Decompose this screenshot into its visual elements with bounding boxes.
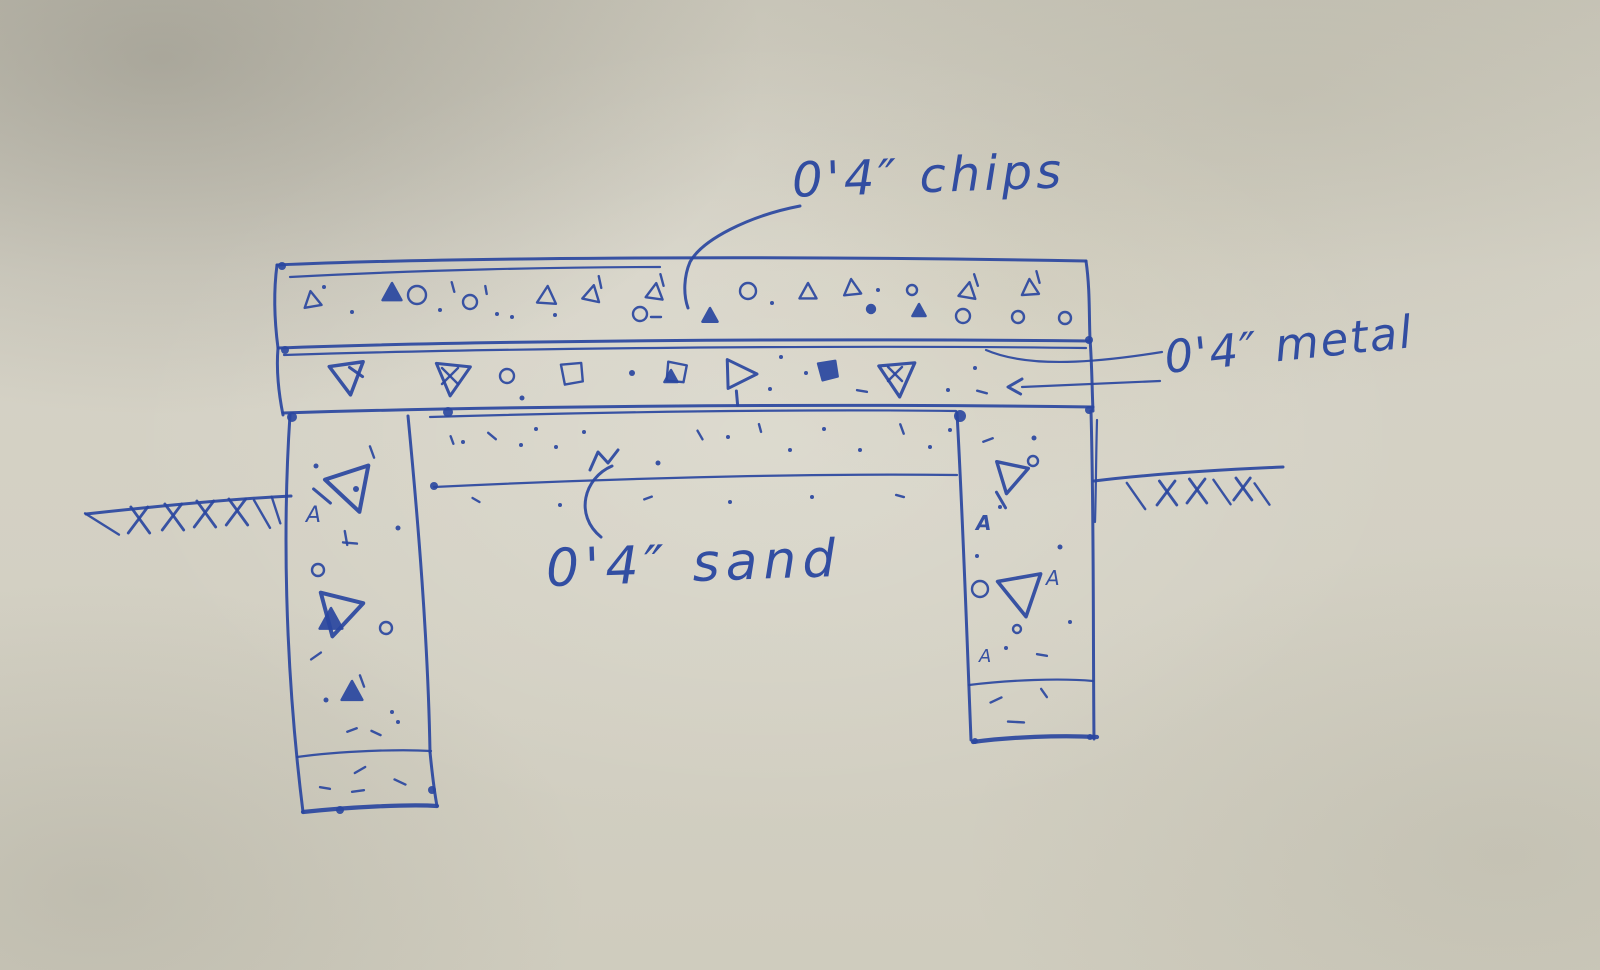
sand-ln-mark — [759, 424, 761, 432]
sand-ln-mark — [488, 433, 496, 439]
sand-d-mark — [558, 503, 562, 507]
right_column-A-mark: A — [1044, 566, 1060, 590]
right_column-d-mark — [1068, 620, 1072, 624]
sand-d-mark — [519, 443, 523, 447]
sand-layer-marks — [451, 424, 952, 507]
sand-label: 0'4″ sand — [545, 529, 842, 599]
ground_left-hx-mark — [165, 504, 184, 530]
left_column-tf-mark — [320, 608, 343, 629]
right_column-ln-mark — [1037, 654, 1047, 656]
metal-d-mark — [629, 370, 635, 376]
right_column-ln-mark — [983, 438, 992, 441]
chips-band-top-double — [290, 267, 660, 277]
ground-hatching-right — [1127, 478, 1270, 509]
ink-blob — [428, 786, 436, 794]
sand-ln-mark — [644, 497, 652, 500]
chips-tu-mark — [958, 281, 978, 299]
right-column-footing-bottom — [973, 736, 1097, 742]
metal-d-mark — [946, 388, 950, 392]
chips-c-mark — [463, 295, 477, 309]
right_column-A-mark: A — [974, 511, 991, 535]
chips-c-mark — [1059, 312, 1071, 324]
sand-ln-mark — [896, 495, 904, 497]
ink-blob — [954, 410, 966, 422]
ground_left-hx-mark — [162, 504, 182, 530]
chips-ln-mark — [974, 274, 978, 285]
sand-d-mark — [810, 495, 814, 499]
chips-c-mark — [867, 305, 875, 313]
ground_left-hx-mark — [131, 507, 150, 533]
ground_left-ln-mark — [272, 497, 281, 524]
left_column-d-mark — [396, 720, 400, 724]
right_column-td-mark — [998, 574, 1048, 621]
sand-d-mark — [822, 427, 826, 431]
ground_right-hx-mark — [1187, 479, 1205, 503]
metal-d-mark — [779, 355, 783, 359]
left_column-tf-mark — [342, 681, 363, 700]
chips-d-mark — [770, 301, 774, 305]
metal-d-mark — [804, 371, 808, 375]
metal-d-mark — [973, 366, 977, 370]
chips-tu-mark — [646, 282, 665, 300]
ink-blob — [1085, 406, 1093, 414]
right_column-ln-mark — [991, 697, 1002, 702]
metal-d-mark — [768, 387, 772, 391]
sand-ln-mark — [473, 498, 480, 502]
chips-c-mark — [740, 283, 756, 299]
right_column-d-mark — [1058, 545, 1063, 550]
chips-tu-mark — [582, 283, 602, 302]
sand-arrowhead — [590, 450, 618, 470]
right-column-right-edge — [1091, 411, 1094, 739]
ink-blob — [430, 482, 438, 490]
metal-ah-mark — [1008, 379, 1022, 394]
chips-ln-mark — [485, 286, 486, 294]
metal-layer-marks — [329, 355, 1022, 405]
metal-leader-upper — [986, 350, 1162, 362]
ground_right-ln-mark — [1213, 480, 1230, 505]
left_column-A-mark: A — [304, 503, 321, 528]
chips-d-mark — [495, 312, 499, 316]
sand-d-mark — [656, 461, 661, 466]
ground_left-hx-mark — [194, 501, 214, 527]
chips-tu-mark — [799, 283, 816, 298]
ground_left-hx-mark — [229, 499, 248, 525]
chips-d-mark — [553, 313, 557, 317]
right_column-ln-mark — [1041, 689, 1047, 697]
chips-label: 0'4″ chips — [791, 143, 1066, 208]
chips-band-top — [277, 258, 1086, 265]
ground_left-hx-mark — [226, 499, 246, 525]
metal-td-mark — [879, 363, 918, 399]
metal-ln-mark — [857, 390, 867, 392]
chips-tu-mark — [302, 290, 322, 308]
left_column-ln-mark — [360, 675, 364, 686]
metal-q-mark — [561, 362, 584, 385]
right_column-c-mark — [1013, 625, 1021, 633]
chips-d-mark — [876, 288, 880, 292]
metal-band-right — [1090, 339, 1093, 411]
sand-d-mark — [948, 428, 952, 432]
metal-c-mark — [500, 369, 514, 383]
left_column-ln-mark — [314, 489, 331, 503]
chips-ln-mark — [452, 282, 455, 292]
chips-tu-mark — [1021, 278, 1039, 295]
ground_left-hx-mark — [197, 501, 216, 527]
left_column-c-mark — [312, 564, 324, 576]
left-column-right-edge-lower — [430, 752, 437, 806]
left-column-marks: A — [304, 446, 405, 791]
sand-d-mark — [788, 448, 792, 452]
right_column-d-mark — [1032, 436, 1037, 441]
ground_right-hx-mark — [1159, 481, 1176, 505]
left_column-d-mark — [390, 710, 394, 714]
left_column-ln-mark — [347, 728, 356, 731]
left_column-d-mark — [353, 486, 359, 492]
ground_left-hx-mark — [128, 507, 148, 533]
ground_right-hx-mark — [1189, 479, 1206, 503]
ink-blob — [443, 407, 453, 417]
left_column-c-mark — [380, 622, 392, 634]
left_column-ln-mark — [395, 779, 406, 784]
metal-qf-mark — [818, 360, 839, 381]
chips-ln-mark — [599, 276, 601, 288]
band-divider-double — [284, 347, 1086, 355]
left_column-ln-mark — [355, 767, 365, 773]
metal-ln-mark — [977, 391, 987, 394]
ink-blob — [1087, 734, 1093, 740]
ink-blob — [972, 738, 978, 744]
chips-d-mark — [510, 315, 514, 319]
right_column-c-mark — [1028, 456, 1038, 466]
left_column-ln-mark — [311, 653, 321, 660]
chips-tu-mark — [537, 285, 557, 303]
right_column-A-mark: A — [978, 646, 991, 667]
left-column-footing-bottom — [303, 805, 437, 812]
sand-strip-line — [434, 475, 957, 487]
chips-tf-mark — [912, 304, 925, 316]
ink-blob — [281, 346, 289, 354]
sand-ln-mark — [451, 436, 454, 444]
left-column-right-edge — [408, 416, 430, 752]
ground_right-hx-mark — [1157, 481, 1175, 505]
sketch-drawing: A AAA — [0, 0, 1600, 970]
metal-td-mark — [433, 363, 470, 397]
left_column-ln-mark — [370, 446, 374, 457]
chips-c-mark — [633, 307, 647, 321]
left_column-d-mark — [314, 464, 319, 469]
chips-ln-mark — [1036, 271, 1039, 283]
sand-ln-mark — [900, 424, 903, 433]
right-column-right-edge-double — [1095, 420, 1097, 522]
chips-c-mark — [408, 286, 426, 304]
left-column-left-edge — [286, 415, 303, 812]
left-column-footing-divider — [297, 750, 431, 757]
left_column-ln-mark — [371, 731, 380, 735]
sand-d-mark — [582, 430, 586, 434]
right_column-c-mark — [972, 581, 988, 597]
sand-d-mark — [534, 427, 538, 431]
ground_right-ln-mark — [1127, 483, 1145, 509]
chips-ln-mark — [660, 274, 663, 286]
sand-d-mark — [858, 448, 862, 452]
right_column-d-mark — [1004, 646, 1008, 650]
ground_right-ln-mark — [1255, 483, 1270, 504]
ink-blob — [1085, 336, 1093, 344]
right_column-d-mark — [998, 505, 1002, 509]
metal-band-bottom-double — [430, 410, 956, 417]
ground_right-hx-mark — [1234, 478, 1251, 500]
ground_left-ln-mark — [254, 500, 270, 528]
chips-d-mark — [438, 308, 442, 312]
chips-c-mark — [956, 309, 970, 323]
sand-d-mark — [554, 445, 558, 449]
ink-blob — [287, 412, 297, 422]
chips-d-mark — [350, 310, 354, 314]
metal-ln-mark — [736, 391, 737, 405]
chips-d-mark — [322, 285, 326, 289]
right-column-footing-divider — [969, 680, 1093, 685]
metal-band-left — [277, 348, 283, 415]
left_column-td-mark — [325, 466, 381, 519]
sand-ln-mark — [698, 431, 703, 440]
chips-band-left — [275, 265, 278, 348]
chips-c-mark — [907, 285, 917, 295]
metal-d-mark — [520, 396, 525, 401]
sand-d-mark — [461, 440, 465, 444]
chips-c-mark — [1012, 311, 1024, 323]
sand-d-mark — [928, 445, 932, 449]
ink-blob — [278, 262, 286, 270]
left_column-d-mark — [324, 698, 329, 703]
left_column-d-mark — [396, 526, 401, 531]
ground_left-ln-mark — [85, 513, 119, 534]
metal-tr-mark — [727, 360, 757, 389]
left_column-ln-mark — [320, 787, 330, 789]
chips-tf-mark — [702, 308, 717, 322]
left_column-ln-mark — [352, 790, 364, 792]
ground-hatching-left — [85, 497, 280, 535]
ink-blob — [336, 806, 344, 814]
right_column-ln-mark — [1008, 722, 1024, 723]
sand-d-mark — [726, 435, 730, 439]
chips-band-right — [1086, 261, 1090, 339]
left_column-ln-mark — [343, 542, 357, 543]
sand-d-mark — [728, 500, 732, 504]
chips-tf-mark — [383, 283, 402, 300]
sand-leader-arrow — [585, 466, 612, 537]
right-column-left-edge — [957, 413, 971, 740]
chips-tu-mark — [843, 278, 862, 295]
paper-sheet: A AAA 0'4″ chips 0'4″ metal 0'4″ sand — [0, 0, 1600, 970]
right_column-d-mark — [975, 554, 979, 558]
